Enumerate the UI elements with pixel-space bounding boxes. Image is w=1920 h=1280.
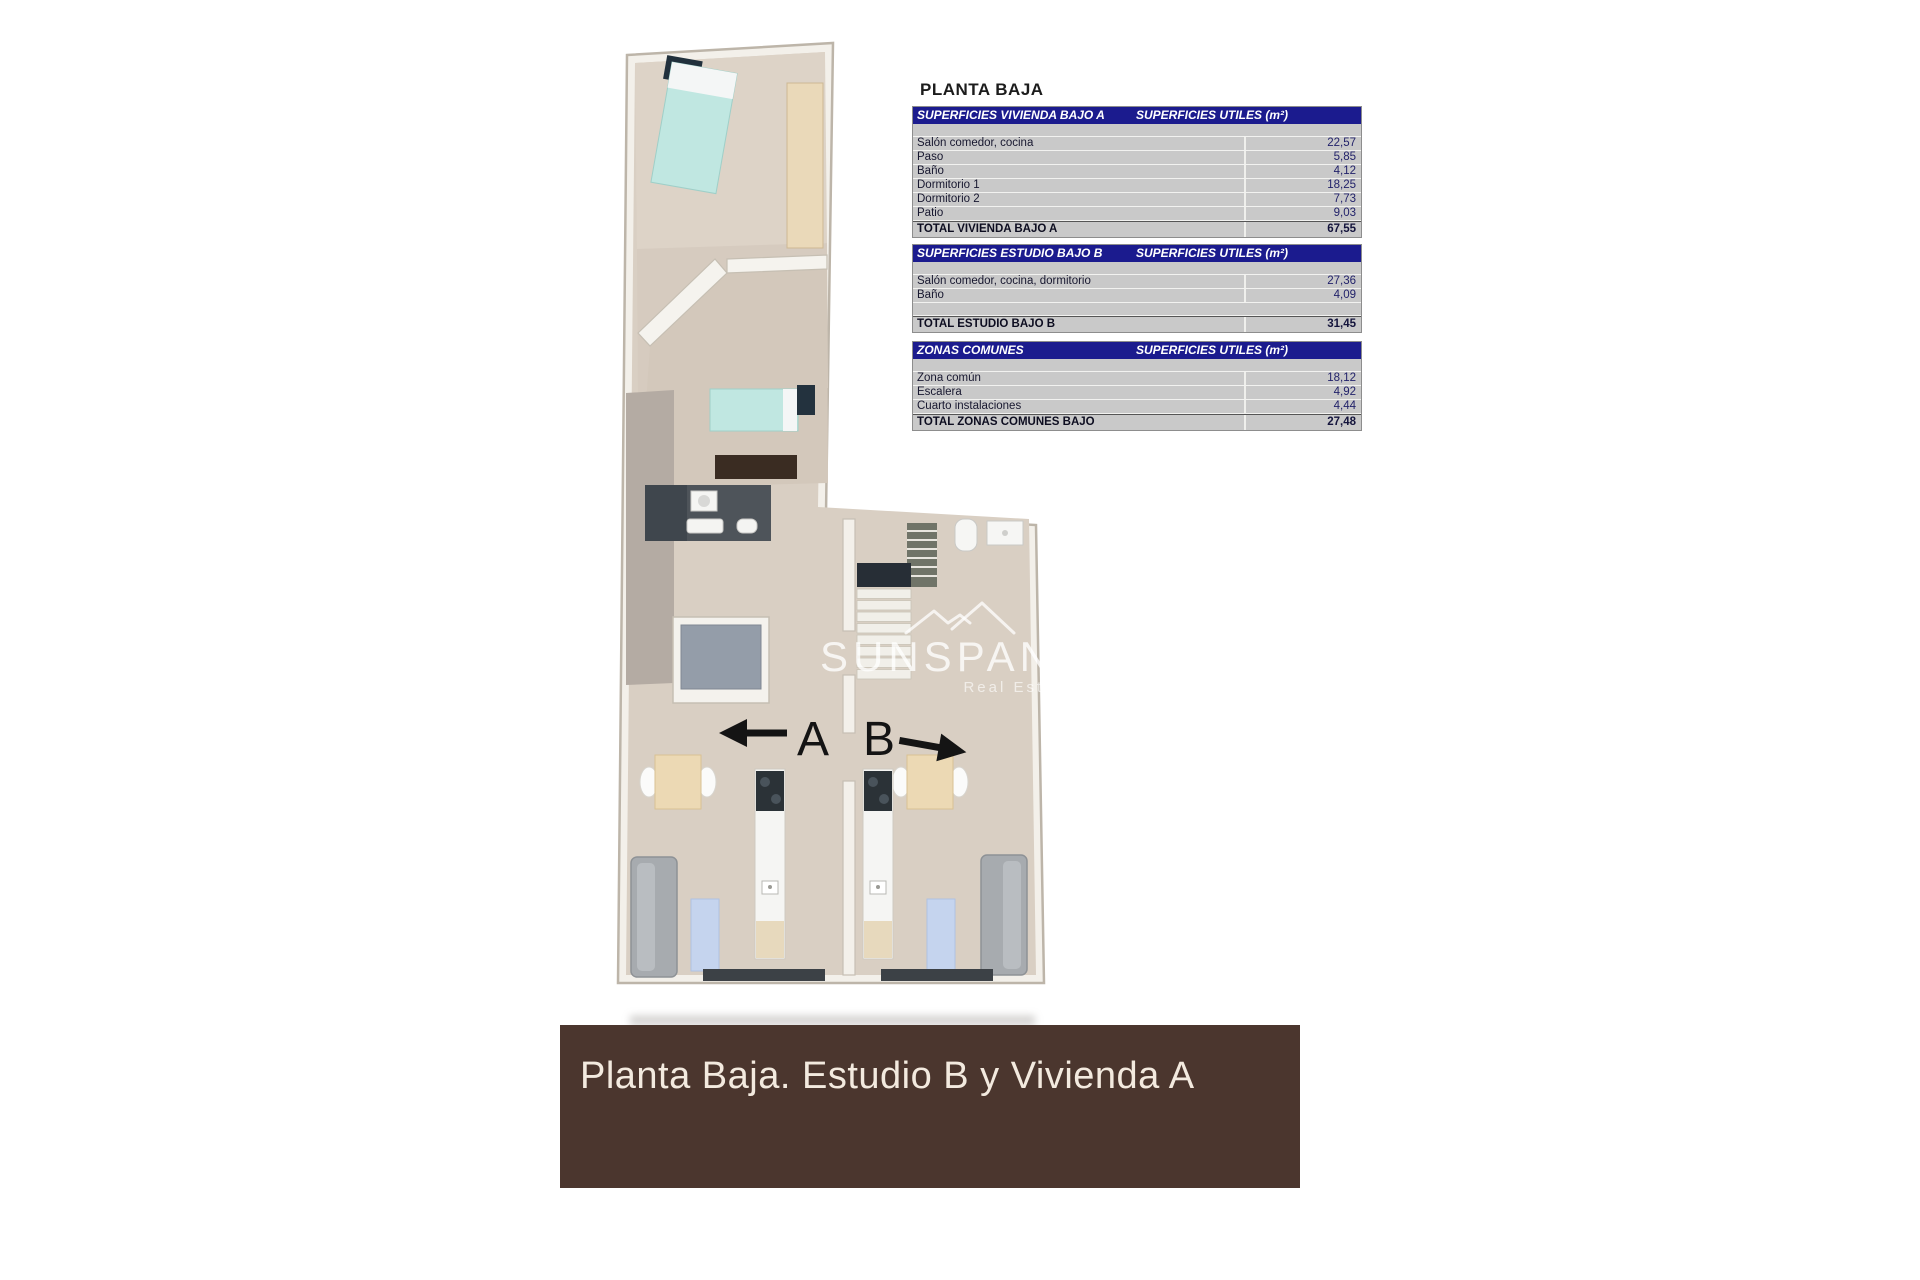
table-row: Dormitorio 2 7,73 (913, 193, 1361, 207)
sofa-a (631, 857, 677, 977)
caption-banner: Planta Baja. Estudio B y Vivienda A (560, 1025, 1300, 1188)
rug-a (691, 899, 719, 971)
table-row: Patio 9,03 (913, 207, 1361, 221)
table-estudio-bajo-b: SUPERFICIES ESTUDIO BAJO B SUPERFICIES U… (912, 244, 1362, 333)
bathroom-a (645, 485, 771, 541)
unit-b-label: B (863, 713, 895, 766)
table-row: Baño 4,09 (913, 289, 1361, 303)
threshold-b (881, 969, 993, 981)
table-row: Zona común 18,12 (913, 372, 1361, 386)
table-header: ZONAS COMUNES SUPERFICIES UTILES (m²) (913, 342, 1361, 359)
rug-b (927, 899, 955, 971)
spacer-row (913, 359, 1361, 372)
table-vivienda-bajo-a: SUPERFICIES VIVIENDA BAJO A SUPERFICIES … (912, 106, 1362, 238)
table-row: Dormitorio 1 18,25 (913, 179, 1361, 193)
table-units-header: SUPERFICIES UTILES (m²) (1136, 107, 1361, 124)
table-row: Salón comedor, cocina 22,57 (913, 137, 1361, 151)
staircase (857, 563, 911, 679)
table-row: Baño 4,12 (913, 165, 1361, 179)
table-units-header: SUPERFICIES UTILES (m²) (1136, 245, 1361, 262)
table-units-header: SUPERFICIES UTILES (m²) (1136, 342, 1361, 359)
table-total-row: TOTAL VIVIENDA BAJO A 67,55 (913, 221, 1361, 237)
patio (673, 617, 769, 703)
table-row: Escalera 4,92 (913, 386, 1361, 400)
spacer-row (913, 124, 1361, 137)
kitchen-island-b (863, 769, 893, 959)
spacer-row (913, 262, 1361, 275)
table-title: SUPERFICIES ESTUDIO BAJO B (913, 245, 1136, 262)
wardrobe (787, 83, 823, 248)
table-row: Salón comedor, cocina, dormitorio 27,36 (913, 275, 1361, 289)
threshold-a (703, 969, 825, 981)
caption-text: Planta Baja. Estudio B y Vivienda A (580, 1055, 1300, 1098)
table-header: SUPERFICIES ESTUDIO BAJO B SUPERFICIES U… (913, 245, 1361, 262)
page-title: PLANTA BAJA (920, 80, 1044, 100)
table-zonas-comunes: ZONAS COMUNES SUPERFICIES UTILES (m²) Zo… (912, 341, 1362, 431)
spacer-row (913, 303, 1361, 316)
table-title: SUPERFICIES VIVIENDA BAJO A (913, 107, 1136, 124)
desk (715, 455, 797, 479)
kitchen-island-a (755, 769, 785, 959)
table-row: Cuarto instalaciones 4,44 (913, 400, 1361, 414)
table-title: ZONAS COMUNES (913, 342, 1136, 359)
table-total-row: TOTAL ESTUDIO BAJO B 31,45 (913, 316, 1361, 332)
table-total-row: TOTAL ZONAS COMUNES BAJO 27,48 (913, 414, 1361, 430)
unit-a-label: A (797, 713, 829, 766)
table-row: Paso 5,85 (913, 151, 1361, 165)
table-header: SUPERFICIES VIVIENDA BAJO A SUPERFICIES … (913, 107, 1361, 124)
sofa-b (981, 855, 1027, 975)
